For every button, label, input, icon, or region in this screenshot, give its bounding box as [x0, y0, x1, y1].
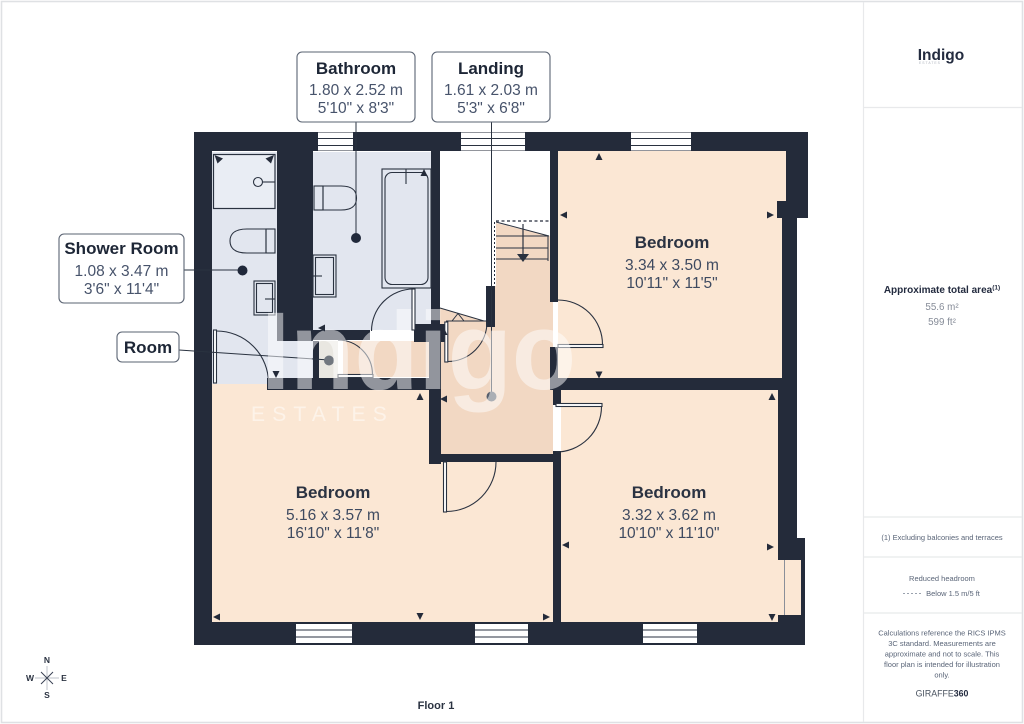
- svg-text:only.: only.: [934, 671, 949, 680]
- svg-text:Approximate total area(1): Approximate total area(1): [884, 285, 1000, 297]
- svg-text:3.34 x 3.50 m: 3.34 x 3.50 m: [625, 257, 719, 274]
- svg-text:Reduced headroom: Reduced headroom: [909, 574, 975, 583]
- svg-text:E: E: [61, 673, 67, 683]
- svg-text:10'10" x 11'10": 10'10" x 11'10": [618, 525, 719, 542]
- svg-text:5.16 x 3.57 m: 5.16 x 3.57 m: [286, 507, 380, 524]
- svg-text:Room: Room: [124, 338, 172, 357]
- svg-text:55.6 m²: 55.6 m²: [925, 302, 959, 313]
- svg-text:Bedroom: Bedroom: [632, 483, 707, 502]
- svg-text:1.61 x 2.03 m: 1.61 x 2.03 m: [444, 82, 538, 99]
- svg-text:approximate and not to scale.: approximate and not to scale. This: [885, 650, 1000, 659]
- svg-text:5'10" x 8'3": 5'10" x 8'3": [318, 100, 394, 117]
- svg-text:Indigo: Indigo: [261, 290, 576, 413]
- svg-text:(1) Excluding balconies and te: (1) Excluding balconies and terraces: [881, 533, 1003, 542]
- svg-text:Below 1.5 m/5 ft: Below 1.5 m/5 ft: [926, 589, 981, 598]
- svg-text:GIRAFFE360: GIRAFFE360: [916, 689, 969, 699]
- svg-text:Floor 1: Floor 1: [418, 700, 455, 712]
- svg-text:Landing: Landing: [458, 59, 524, 78]
- svg-text:N: N: [44, 655, 50, 665]
- svg-text:Bedroom: Bedroom: [296, 483, 371, 502]
- svg-text:599 ft²: 599 ft²: [928, 317, 957, 328]
- svg-text:5'3" x 6'8": 5'3" x 6'8": [457, 100, 525, 117]
- svg-text:ESTATES: ESTATES: [919, 61, 941, 65]
- svg-text:Calculations reference the RIC: Calculations reference the RICS IPMS: [878, 629, 1006, 638]
- svg-text:ESTATES: ESTATES: [251, 403, 394, 426]
- svg-text:3.32 x 3.62 m: 3.32 x 3.62 m: [622, 507, 716, 524]
- svg-text:10'11" x 11'5": 10'11" x 11'5": [626, 275, 717, 292]
- svg-text:W: W: [26, 673, 35, 683]
- svg-text:Bathroom: Bathroom: [316, 59, 396, 78]
- svg-text:Shower Room: Shower Room: [64, 239, 178, 258]
- svg-text:S: S: [44, 690, 50, 700]
- svg-text:Bedroom: Bedroom: [635, 233, 710, 252]
- svg-text:3'6" x 11'4": 3'6" x 11'4": [84, 281, 159, 298]
- svg-text:floor plan is intended for ill: floor plan is intended for illustration: [884, 660, 1000, 669]
- svg-text:3C standard. Measurements are: 3C standard. Measurements are: [888, 639, 996, 648]
- svg-text:1.80 x 2.52 m: 1.80 x 2.52 m: [309, 82, 403, 99]
- svg-text:1.08 x 3.47 m: 1.08 x 3.47 m: [75, 263, 169, 280]
- svg-text:16'10" x 11'8": 16'10" x 11'8": [287, 525, 379, 542]
